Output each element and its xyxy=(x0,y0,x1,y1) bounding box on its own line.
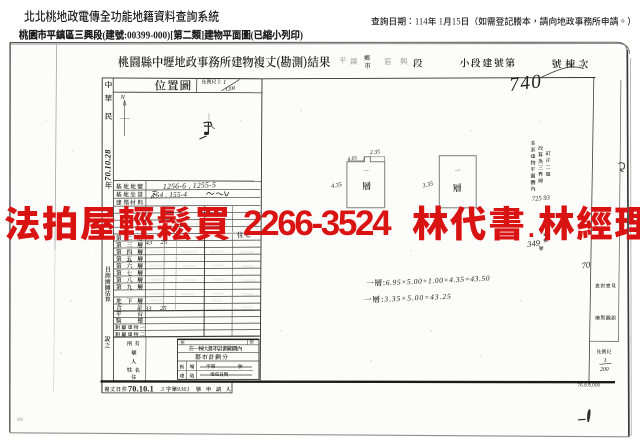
svg-text:屋: 屋 xyxy=(546,171,551,178)
svg-text:都市計劃分: 都市計劃分 xyxy=(194,352,228,361)
svg-text:鎮: 鎮 xyxy=(350,56,358,67)
svg-text:200: 200 xyxy=(600,367,609,373)
svg-text:建造日期: 建造日期 xyxy=(209,372,229,378)
svg-text:字第: 字第 xyxy=(205,363,216,370)
svg-text:市: 市 xyxy=(365,61,371,70)
svg-text:層: 層 xyxy=(452,181,462,195)
svg-text:9361: 9361 xyxy=(177,387,190,393)
svg-text:建: 建 xyxy=(179,372,185,379)
svg-text:附屬建物二: 附屬建物二 xyxy=(116,331,145,338)
svg-text:查詢日期：114年 1月15日（如需登記謄本，請向地政事務所: 查詢日期：114年 1月15日（如需登記謄本，請向地政事務所申請。） xyxy=(371,14,636,27)
svg-text:平: 平 xyxy=(339,55,347,66)
svg-text:訂: 訂 xyxy=(545,150,551,157)
svg-text:之: 之 xyxy=(105,341,111,350)
svg-text:有: 有 xyxy=(135,340,140,348)
svg-text:算: 算 xyxy=(105,295,111,304)
svg-text:華: 華 xyxy=(104,93,113,104)
svg-text:造: 造 xyxy=(190,372,195,379)
svg-text:繪製圖說: 繪製圖說 xyxy=(595,315,617,322)
svg-text:1256-6 , 1255-5: 1256-6 , 1255-5 xyxy=(163,180,217,191)
svg-text:中: 中 xyxy=(105,79,113,90)
svg-text:權: 權 xyxy=(131,349,137,357)
svg-text:桃園縣中壢地政事務所建物複丈(勘測)結果: 桃園縣中壢地政事務所建物複丈(勘測)結果 xyxy=(118,52,331,70)
svg-text:正: 正 xyxy=(546,157,551,164)
svg-text:70.10.1: 70.10.1 xyxy=(128,385,154,394)
svg-text:1: 1 xyxy=(604,357,607,364)
svg-text:所: 所 xyxy=(126,340,133,348)
svg-text:比例尺 1:: 比例尺 1: xyxy=(202,79,223,86)
svg-text:人: 人 xyxy=(131,358,137,366)
svg-text:740: 740 xyxy=(508,71,543,96)
svg-text:增: 增 xyxy=(189,364,195,371)
svg-text:N: N xyxy=(120,94,126,101)
svg-text:層: 層 xyxy=(362,179,372,193)
svg-text:第九層: 第九層 xyxy=(115,282,143,291)
svg-text:興: 興 xyxy=(400,56,408,67)
svg-text:33: 33 xyxy=(144,306,152,313)
svg-text:1: 1 xyxy=(223,79,226,86)
svg-text:複丈日件: 複丈日件 xyxy=(104,386,128,393)
svg-text:棟: 棟 xyxy=(180,340,185,346)
svg-text:2.35: 2.35 xyxy=(370,149,381,156)
svg-text:北北桃地政電傳全功能地籍資料查詢系統: 北北桃地政電傳全功能地籍資料查詢系統 xyxy=(24,6,219,25)
svg-text:桃園市平鎮區三興段(建號:00399-000)[第二類]建物: 桃園市平鎮區三興段(建號:00399-000)[第二類]建物平面圖(已縮小列印) xyxy=(19,27,303,42)
svg-text:比例尺: 比例尺 xyxy=(597,348,612,355)
svg-text:內: 內 xyxy=(531,186,536,193)
svg-text:3: 3 xyxy=(160,387,164,393)
svg-text:號: 號 xyxy=(250,340,255,346)
svg-text:一: 一 xyxy=(454,166,461,174)
svg-text:76.8.3,000: 76.8.3,000 xyxy=(578,383,601,389)
svg-text:小段建號第: 小段建號第 xyxy=(460,54,517,69)
svg-text:字第: 字第 xyxy=(165,385,178,393)
svg-text:區: 區 xyxy=(384,56,392,67)
svg-text:二: 二 xyxy=(546,164,551,171)
svg-text:70.10.28: 70.10.28 xyxy=(103,149,113,181)
svg-text:住: 住 xyxy=(131,373,137,381)
svg-text:民: 民 xyxy=(105,111,113,122)
svg-text:一: 一 xyxy=(363,167,370,175)
svg-text:號: 號 xyxy=(238,364,243,370)
svg-text:位置圖: 位置圖 xyxy=(155,78,193,94)
svg-text:1.05: 1.05 xyxy=(348,155,358,162)
svg-text:查對意見: 查對意見 xyxy=(595,283,617,290)
svg-text:25: 25 xyxy=(160,305,167,312)
svg-text:段: 段 xyxy=(412,56,423,70)
svg-text:號棟次: 號棟次 xyxy=(552,55,592,70)
